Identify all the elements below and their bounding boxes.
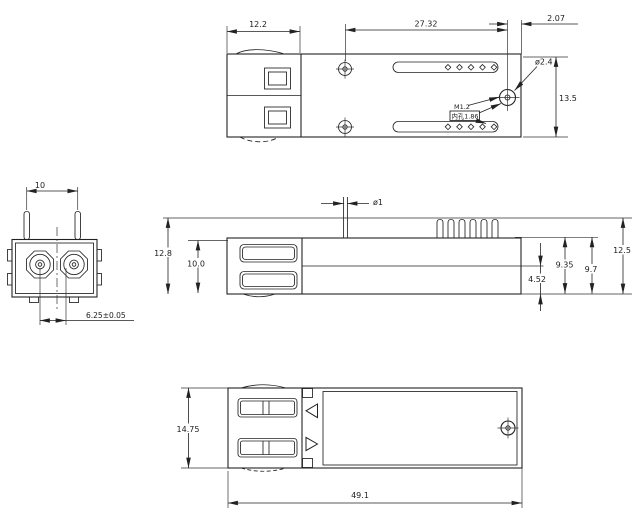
front-body-outline xyxy=(12,240,97,298)
dim-side-base-height: 4.52 xyxy=(528,275,546,284)
dim-top-screw-head-dia: ø2.4 xyxy=(535,58,553,67)
dim-front-pin-pitch: 10 xyxy=(35,181,45,190)
bottom-label-plate xyxy=(323,392,517,466)
front-body-inner xyxy=(16,243,94,294)
dim-front-fiber-pitch: 6.25±0.05 xyxy=(86,311,126,320)
side-lc-slots xyxy=(240,245,297,290)
dim-side-pin-dia: ø1 xyxy=(373,198,383,207)
top-view: 12.2 27.32 2.07 13.5 ø2.4 M1.2 内孔1.86 xyxy=(227,14,578,142)
front-lc-port-right xyxy=(61,251,88,278)
dim-top-hole-span: 27.32 xyxy=(415,20,438,29)
dim-top-inner-hole-note: 内孔1.86 xyxy=(452,112,479,121)
front-guide-pins xyxy=(24,212,81,240)
dim-side-rear-height-b: 9.7 xyxy=(585,265,598,274)
bottom-dimensions: 14.75 49.1 xyxy=(174,388,523,508)
top-dimensions: 12.2 27.32 2.07 13.5 ø2.4 M1.2 内孔1.86 xyxy=(227,14,578,137)
top-latch-bump xyxy=(236,50,283,54)
dim-side-rear-height-a: 9.35 xyxy=(556,261,574,270)
top-pad-holes xyxy=(336,60,354,137)
dim-side-front-height: 10.0 xyxy=(187,260,205,269)
dim-bottom-body-width: 14.75 xyxy=(177,425,200,434)
bottom-screw-hole xyxy=(498,418,519,439)
bottom-rx-arrow-icon xyxy=(306,404,318,418)
front-feet xyxy=(30,297,79,303)
side-tall-pin xyxy=(344,197,348,238)
front-dimensions: 10 6.25±0.05 xyxy=(27,181,134,325)
dim-side-overall-height: 12.8 xyxy=(154,249,172,258)
bottom-lc-slots xyxy=(238,399,297,458)
top-slots xyxy=(393,62,498,132)
top-latch-bump-hidden xyxy=(240,137,277,142)
dim-side-total-height: 12.5 xyxy=(613,246,631,255)
dim-top-body-width: 13.5 xyxy=(559,94,577,103)
dim-top-screw-to-edge: 2.07 xyxy=(547,14,565,23)
dim-top-latch-length: 12.2 xyxy=(249,20,267,29)
side-connector-pins xyxy=(437,220,498,239)
front-view: 10 6.25±0.05 xyxy=(8,181,135,325)
dim-top-thread-size: M1.2 xyxy=(454,103,470,111)
side-view: ø1 12.8 10.0 4.52 9.35 9.7 12.5 xyxy=(151,197,635,311)
dim-bottom-overall-length: 49.1 xyxy=(351,491,369,500)
top-latch-windows xyxy=(265,68,291,128)
bottom-body-outline xyxy=(228,388,522,468)
bottom-tabs xyxy=(303,389,313,468)
bottom-tx-arrow-icon xyxy=(306,437,318,450)
bottom-view: 14.75 49.1 xyxy=(174,385,523,508)
technical-drawing-page: 12.2 27.32 2.07 13.5 ø2.4 M1.2 内孔1.86 xyxy=(0,0,644,515)
drawing-canvas: 12.2 27.32 2.07 13.5 ø2.4 M1.2 内孔1.86 xyxy=(0,0,644,515)
